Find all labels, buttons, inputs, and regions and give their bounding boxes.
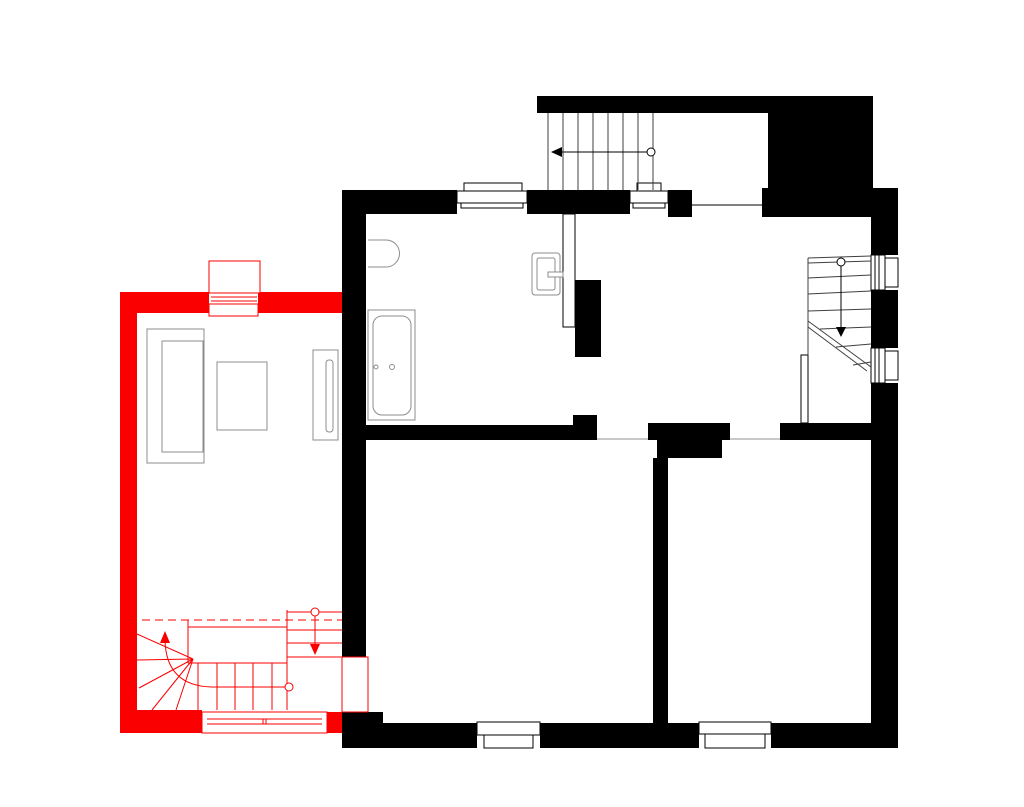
window-top1-sill: [464, 183, 522, 191]
wall-right: [871, 214, 898, 748]
right-stairs-tread-2: [808, 275, 871, 278]
red-walkline-origin: [285, 683, 293, 691]
wall-bath-partition-block: [575, 280, 601, 357]
red-wall-bottom-right: [327, 712, 342, 733]
wall-mid-pier: [573, 415, 597, 425]
red-window-top-sill: [209, 304, 258, 316]
red-winder-fan-4: [152, 659, 193, 710]
thin-wall-bath: [563, 214, 575, 327]
washbasin: [368, 240, 400, 267]
right-stairs-tread-4: [808, 309, 871, 311]
right-stairs-top-edge: [808, 256, 871, 258]
window-bottom2-sill: [705, 734, 765, 748]
red-wall-left: [120, 292, 137, 733]
red-walkline-arrowhead: [160, 631, 170, 643]
bathtub-drain: [374, 365, 378, 369]
wall-chimney-mass: [768, 96, 873, 190]
right-stairs-cut-line-b: [808, 327, 867, 371]
right-stairs-arrowhead: [836, 327, 846, 337]
window-top2-inner: [633, 203, 665, 208]
window-right1-frame: [871, 255, 885, 290]
wall-top-pier: [668, 190, 692, 217]
wall-mid-horizontal: [366, 425, 597, 440]
red-wall-bottom: [120, 710, 202, 733]
wall-top-segment-b: [527, 190, 630, 214]
window-bottom2-frame: [699, 722, 771, 734]
window-right2-sill: [885, 351, 898, 380]
window-right1-sill: [885, 258, 898, 287]
red-flight-arrowhead: [310, 644, 320, 655]
toilet-flush-bar: [548, 272, 563, 277]
red-window-top-box: [209, 261, 260, 293]
window-bottom1-frame: [477, 722, 540, 735]
right-stairs-arrow-origin: [837, 258, 845, 266]
floor-plan-page: [0, 0, 1024, 807]
wall-bottom: [342, 723, 898, 748]
top-stairs-arrowhead: [551, 147, 562, 157]
right-stairs-tread-3: [808, 291, 871, 294]
wall-top-right: [762, 188, 898, 217]
wall-panel-leaf: [326, 360, 333, 432]
wall-left: [342, 190, 366, 657]
red-winder-fan-2: [137, 659, 193, 660]
floor-plan: [0, 0, 1024, 807]
top-stairs-arrow-origin: [647, 148, 655, 156]
red-door-opening: [342, 657, 368, 712]
wall-stairhall-band: [780, 423, 871, 440]
window-right2-frame: [871, 348, 885, 383]
wall-stair-enclosure-top: [537, 96, 770, 113]
bathtub-faucet: [390, 365, 395, 370]
thin-wall-stairhall: [801, 355, 808, 423]
wall-lower-partition: [653, 458, 668, 723]
sofa-seat: [162, 341, 203, 452]
red-window-bottom-box: [202, 712, 327, 733]
coffee-table: [217, 362, 267, 430]
red-flight-arrow-origin: [311, 608, 319, 616]
wall-mid-right: [648, 423, 730, 440]
window-top2-frame: [630, 191, 668, 203]
window-top2-sill: [637, 183, 661, 191]
wall-mid-block: [657, 440, 722, 458]
window-top1-inner: [461, 203, 523, 208]
window-bottom1-sill: [484, 735, 533, 748]
window-top1-frame: [457, 191, 527, 203]
